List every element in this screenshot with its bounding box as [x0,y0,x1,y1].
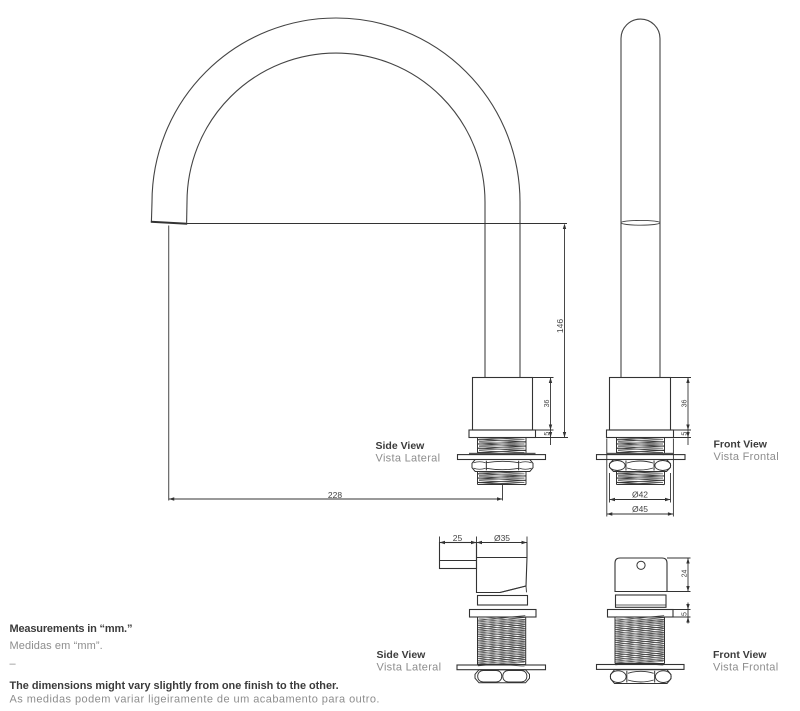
svg-text:Ø45: Ø45 [632,504,648,514]
svg-text:Side View: Side View [376,440,426,452]
svg-text:5: 5 [682,432,689,436]
svg-text:Front View: Front View [713,649,767,661]
svg-text:Ø35: Ø35 [494,533,510,543]
svg-text:Vista Frontal: Vista Frontal [714,451,779,463]
svg-text:Vista Frontal: Vista Frontal [713,662,778,674]
svg-text:Side View: Side View [377,649,427,661]
svg-text:The dimensions might vary slig: The dimensions might vary slightly from … [10,680,339,692]
svg-text:24: 24 [682,570,689,578]
svg-text:36: 36 [544,400,551,408]
svg-text:Ø42: Ø42 [632,489,648,499]
svg-text:–: – [10,658,17,670]
svg-text:228: 228 [328,490,342,500]
svg-text:As medidas podem variar ligeir: As medidas podem variar ligeiramente de … [10,694,380,706]
svg-text:Vista Lateral: Vista Lateral [376,453,441,465]
svg-text:146: 146 [555,319,565,333]
svg-text:Front View: Front View [714,439,768,451]
svg-text:5: 5 [544,432,551,436]
svg-text:Medidas em “mm”.: Medidas em “mm”. [10,640,103,652]
svg-text:25: 25 [453,533,463,543]
svg-text:5: 5 [682,612,689,616]
svg-text:36: 36 [682,400,689,408]
svg-text:Measurements in “mm.”: Measurements in “mm.” [10,623,133,635]
svg-text:Vista Lateral: Vista Lateral [377,662,442,674]
